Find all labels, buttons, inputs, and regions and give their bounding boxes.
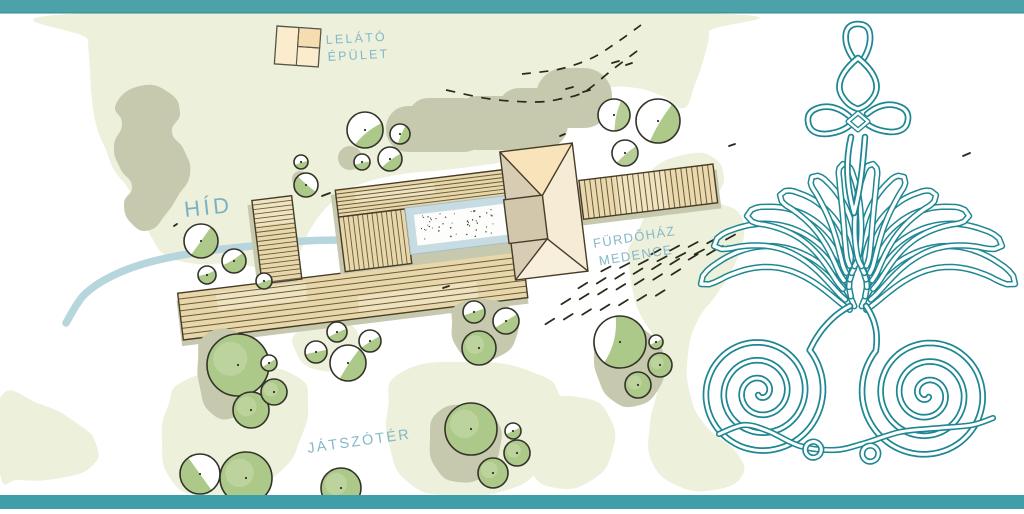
svg-text:HÍD: HÍD	[183, 192, 234, 222]
